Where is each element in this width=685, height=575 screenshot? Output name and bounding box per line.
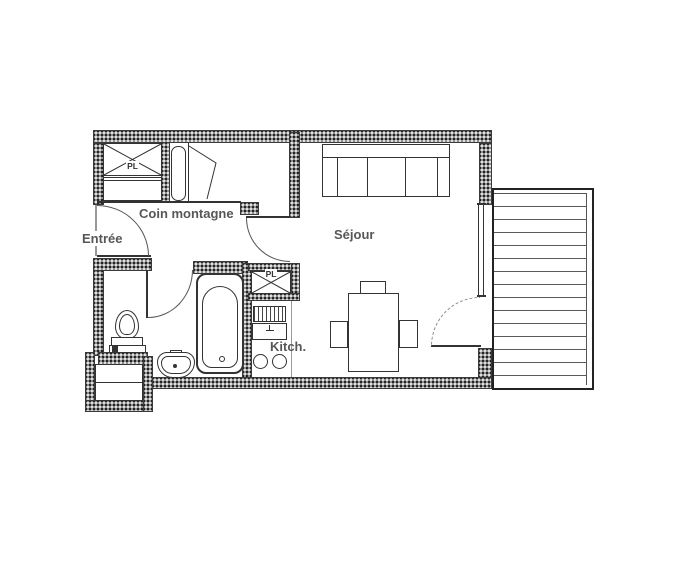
- wall-bottom: [148, 377, 492, 389]
- sofa-cushion-divider: [405, 158, 406, 196]
- wall-left-bathroom: [93, 258, 104, 356]
- bed-partition-line: [188, 143, 189, 203]
- hotplate-right: [272, 354, 287, 369]
- window-glass-line-outer: [478, 205, 479, 297]
- room-label-coin-montagne: Coin montagne: [139, 206, 234, 221]
- toilet-flush-mark: [112, 346, 118, 352]
- bed: [171, 146, 186, 201]
- chair-top: [360, 281, 386, 294]
- bathroom-door-arc: [148, 270, 193, 318]
- bed-fold-lines: [189, 146, 216, 199]
- bathtub-drain-icon: [219, 356, 225, 362]
- window-glass-line-inner: [483, 205, 484, 297]
- sofa: [322, 144, 450, 197]
- wall-kitchen-closet-bottom: [248, 293, 300, 301]
- balcony-inner-right-line: [586, 193, 587, 385]
- room-label-sejour: Séjour: [334, 227, 374, 242]
- wall-sejour-coin: [289, 132, 300, 218]
- window-cap-top: [477, 203, 486, 205]
- sofa-cushion-divider: [367, 158, 368, 196]
- storage-locker-divider: [96, 382, 142, 383]
- washbasin-drain-icon: [173, 364, 177, 368]
- room-label-entree: Entrée: [82, 231, 122, 246]
- sofa-armrest-left: [337, 158, 338, 196]
- kitchen-striped-unit: [253, 306, 286, 322]
- closet-kitchen-label: PL: [251, 269, 291, 279]
- alcove-edge-line: [97, 201, 241, 203]
- closet-coin-label: PL: [103, 161, 162, 171]
- toilet-bowl-inner: [119, 314, 135, 335]
- chair-right: [399, 320, 418, 348]
- hotplate-left: [253, 354, 268, 369]
- floor-plan: Entrée Coin montagne Séjour Kitch. PL PL: [0, 0, 685, 575]
- wall-entree-bathroom: [93, 258, 152, 271]
- sejour-door-arc: [246, 218, 290, 262]
- closet-kitchen-label-text: PL: [265, 269, 278, 279]
- wall-coin-divider: [161, 142, 170, 203]
- closet-coin-shelf-line: [104, 180, 161, 181]
- chair-left: [330, 321, 348, 348]
- wall-storage-right: [143, 356, 153, 412]
- balcony-door-arc: [431, 297, 480, 346]
- room-label-kitchen: Kitch.: [270, 339, 306, 354]
- sofa-back-line: [323, 157, 449, 158]
- wall-doorway-stub: [240, 202, 259, 215]
- dining-table: [348, 293, 399, 372]
- wall-right-upper: [479, 143, 492, 205]
- closet-coin-box: [103, 143, 162, 176]
- kitchen-tap-icon: [266, 330, 274, 331]
- closet-coin-label-text: PL: [126, 161, 139, 171]
- sofa-armrest-right: [437, 158, 438, 196]
- balcony-decking: [494, 194, 586, 384]
